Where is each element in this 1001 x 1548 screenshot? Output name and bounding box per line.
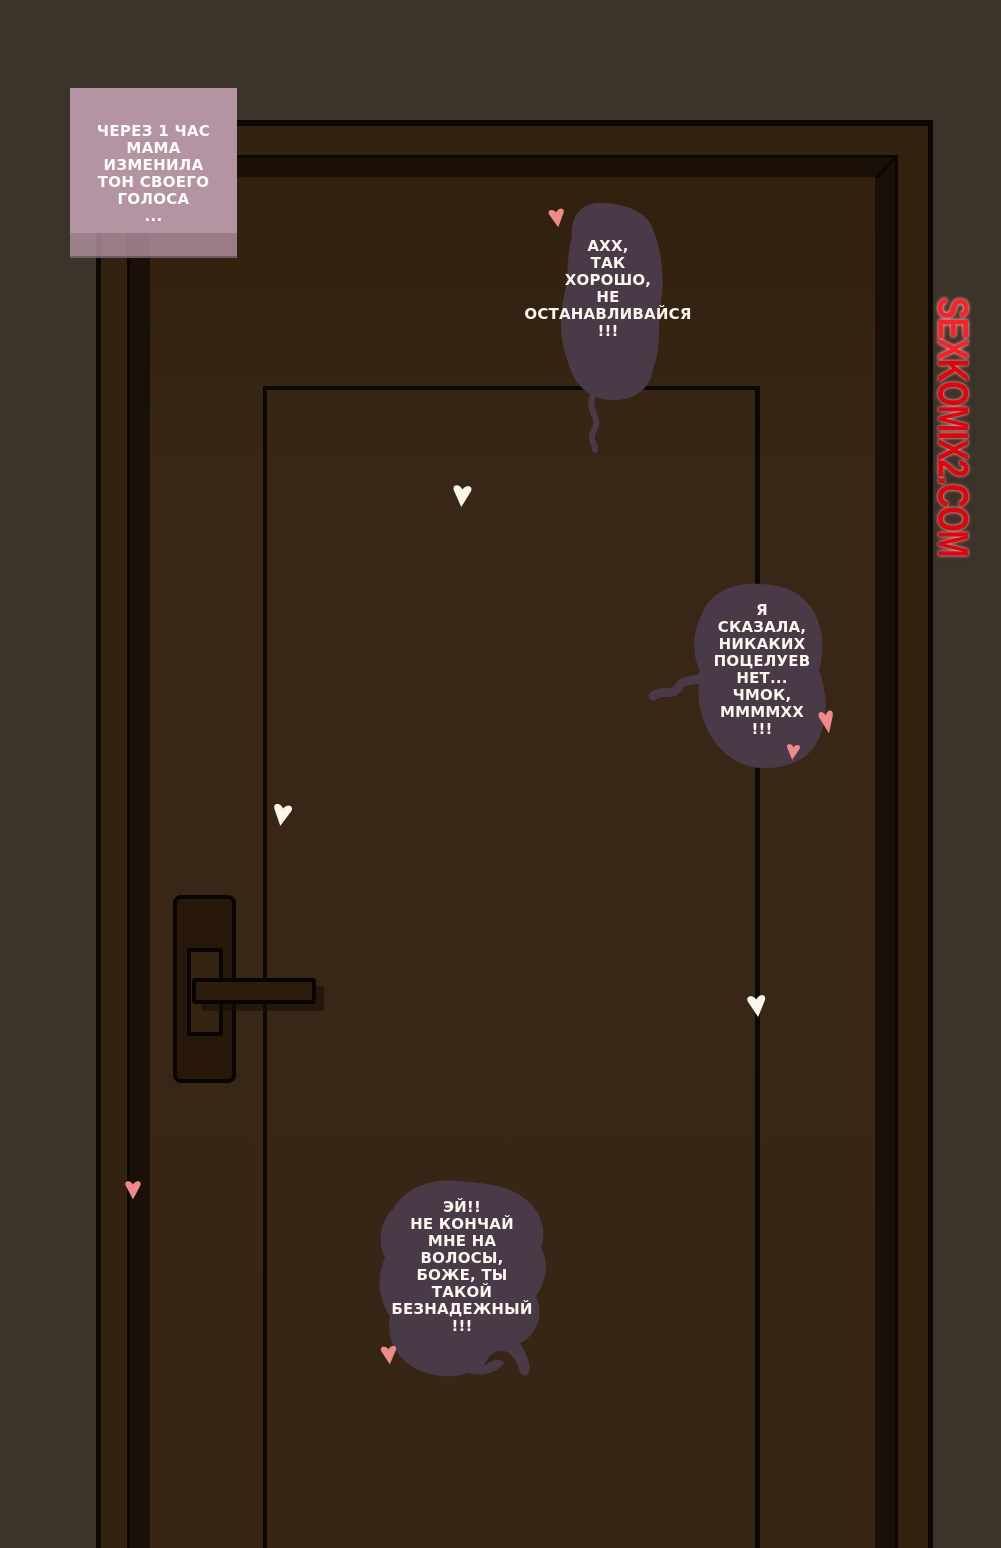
door-handle-lever xyxy=(192,978,316,1004)
comic-page: ЧЕРЕЗ 1 ЧАС МАМА ИЗМЕНИЛА ТОН СВОЕГО ГОЛ… xyxy=(0,0,1001,1548)
speech-bubble-2-text: Я СКАЗАЛА, НИКАКИХ ПОЦЕЛУЕВ НЕТ... ЧМОК,… xyxy=(612,602,912,738)
speech-bubble-1-text: АХХ, ТАК ХОРОШО, НЕ ОСТАНАВЛИВАЙСЯ !!! xyxy=(458,238,758,340)
watermark-part2: KOMIX2.COM xyxy=(930,359,977,557)
caption-text: ЧЕРЕЗ 1 ЧАС МАМА ИЗМЕНИЛА ТОН СВОЕГО ГОЛ… xyxy=(70,123,237,225)
door-panel-line-right xyxy=(755,386,760,1548)
door-panel-line-top xyxy=(263,386,760,390)
door xyxy=(150,177,875,1548)
door-panel-line-left xyxy=(263,386,267,1548)
watermark-part1: SEX xyxy=(930,297,977,359)
caption-box-fade xyxy=(70,233,237,258)
speech-bubble-3-text: ЭЙ!! НЕ КОНЧАЙ МНЕ НА ВОЛОСЫ, БОЖЕ, ТЫ Т… xyxy=(312,1199,612,1335)
site-watermark: SEXKOMIX2.COM xyxy=(928,297,977,556)
